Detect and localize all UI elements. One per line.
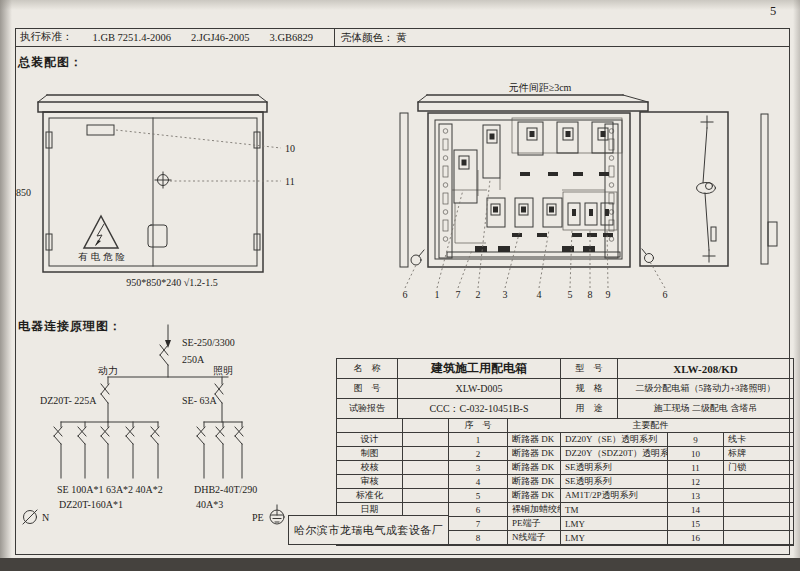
electric-danger-icon [84,216,118,248]
serial-header: 序 号 [449,419,508,433]
part-model: TM [561,503,668,517]
din-rail [447,246,620,257]
callout: 8 [588,289,593,300]
earth-symbol [270,505,284,524]
part-name: 断路器 DK [508,447,561,461]
role-label: 校核 [337,461,403,475]
serial-no-2: 13 [668,489,724,503]
callout: 6 [663,289,668,300]
mounting-rail-right [605,124,618,258]
wiring-schematic: SE-250/3300 250A 动力 照明 DZ20T- 225A SE- 6… [23,325,284,524]
empty-cell [403,475,449,489]
callout: 6 [403,289,408,300]
serial-no-2: 10 [668,447,724,461]
door-handle [148,225,167,247]
empty-cell [403,489,449,503]
callout: 2 [476,289,481,300]
serial-no-2: 14 [668,503,724,517]
part-name: 裸铜加蜡绞线 [508,503,561,517]
part-name-2 [724,475,793,489]
front-view-drawing: 10 11 850 有电危险 950*850*240 √1.2-1.5 [16,95,295,288]
padlock-hasp-right [642,249,654,263]
main-breaker [454,150,477,203]
lighting-circuit-switches [197,422,243,478]
lighting-branch-label: 照明 [213,365,233,376]
main-breaker-rating: 250A [182,354,205,365]
part-name-2: 门锁 [724,461,793,475]
height-dimension: 850 [16,187,31,198]
power-branch-label: 动力 [98,365,118,376]
part-name: 断路器 DK [508,433,561,447]
manufacturer-name: 哈尔滨市龙瑞电气成套设备厂 [288,515,449,545]
scanned-drawing-page: 5 执行标准： 1.GB 7251.4-2006 2.JGJ46-2005 3.… [0,0,800,571]
serial-no: 6 [449,503,508,517]
part-name: 断路器 DK [508,475,561,489]
serial-no: 8 [449,531,508,545]
power-circuit-ratings: SE 100A*1 63A*2 40A*2 [57,484,163,495]
power-circuit-switches [54,422,159,478]
serial-no: 3 [449,461,508,475]
size-note: 950*850*240 √1.2-1.5 [126,277,217,288]
name-label: 名 称 [337,359,398,379]
part-model: SE透明系列 [561,475,668,489]
left-door-edge [400,113,408,267]
serial-no: 2 [449,447,508,461]
serial-no: 4 [449,475,508,489]
main-breaker-model: SE-250/3300 [182,337,235,348]
lighting-breaker-model: SE- 63A [182,395,218,406]
spec-label: 规 格 [561,379,618,399]
role-label: 标准化 [337,489,403,503]
lighting-circuit-ratings-2: 40A*3 [196,499,223,510]
neutral-label: N [42,512,49,523]
callout-11: 11 [285,176,295,187]
nameplate [87,125,114,135]
name-value: 建筑施工用配电箱 [398,359,561,379]
serial-no: 1 [449,433,508,447]
test-report-value: CCC：C-032-10451B-S [398,399,561,419]
serial-no-2: 15 [668,517,724,531]
usage-label: 用 途 [561,399,618,419]
part-name-2 [724,503,793,517]
model-label: 型 号 [561,359,618,379]
serial-no-2: 12 [668,475,724,489]
pe-label: PE [252,512,264,523]
callout-10: 10 [285,143,295,154]
part-name-2 [724,517,793,531]
door-edge-panel [761,114,777,264]
part-model: AM1T/2P透明系列 [561,489,668,503]
power-breaker-model: DZ20T- 225A [40,395,97,406]
part-model: DZ20Y（SDZ20T）透明系列 [561,447,668,461]
empty-cell [403,433,449,447]
callout: 3 [503,289,508,300]
serial-no-2: 9 [668,433,724,447]
internal-callouts: 6 1 7 2 3 4 5 8 9 6 [403,289,668,300]
model-value: XLW-208/KD [618,359,793,379]
door-lock-crosshair [155,172,171,188]
lighting-circuit-ratings: DHB2-40T/290 [194,484,257,495]
part-name-2 [724,531,793,545]
part-name-2: 标牌 [724,447,793,461]
breaker-row-bottom [487,198,613,227]
part-model: DZ20Y（SE）透明系列 [561,433,668,447]
part-name-2: 线卡 [724,433,793,447]
usage-value: 施工现场 二级配电 含塔吊 [618,399,793,419]
part-name: 断路器 DK [508,489,561,503]
part-model: LMY [561,531,668,545]
callout: 5 [568,289,573,300]
spacing-note: 元件间距≥3cm [509,82,572,93]
part-model: LMY [561,517,668,531]
right-door-open [640,112,728,266]
role-label: 设计 [337,433,403,447]
drawing-no-value: XLW-D005 [398,379,561,399]
test-report-label: 试验报告 [337,399,398,419]
role-label: 审核 [337,475,403,489]
spec-value: 二级分配电箱（5路动力+3路照明） [618,379,793,399]
internal-view-drawing: 元件间距≥3cm [400,82,777,300]
part-model: SE透明系列 [561,461,668,475]
breaker-row-top [518,122,613,155]
callout: 7 [456,289,461,300]
part-name: N线端子 [508,531,561,545]
power-circuit-ratings-2: DZ20T-160A*1 [59,499,123,510]
callout: 9 [606,289,611,300]
serial-no-2: 11 [668,461,724,475]
part-name-2 [724,489,793,503]
serial-no-2: 16 [668,531,724,545]
drawing-no-label: 图 号 [337,379,398,399]
empty-cell [403,461,449,475]
breaker [483,125,500,178]
parts-header: 主要配件 [508,419,793,433]
neutral-symbol [23,510,37,524]
serial-no: 5 [449,489,508,503]
empty-cell [403,447,449,461]
callout: 4 [537,289,542,300]
terminal-strip [520,172,609,176]
serial-no: 7 [449,517,508,531]
title-block: 名 称 建筑施工用配电箱 型 号 XLW-208/KD 图 号 XLW-D005… [336,358,794,546]
part-name: PE端子 [508,517,561,531]
callout: 1 [435,289,440,300]
warning-text: 有电危险 [78,252,128,262]
part-name: 断路器 DK [508,461,561,475]
empty-cell [337,419,403,433]
empty-cell [403,419,449,433]
padlock-hasp-left [411,250,424,265]
role-label: 制图 [337,447,403,461]
terminal-strip [512,233,613,237]
